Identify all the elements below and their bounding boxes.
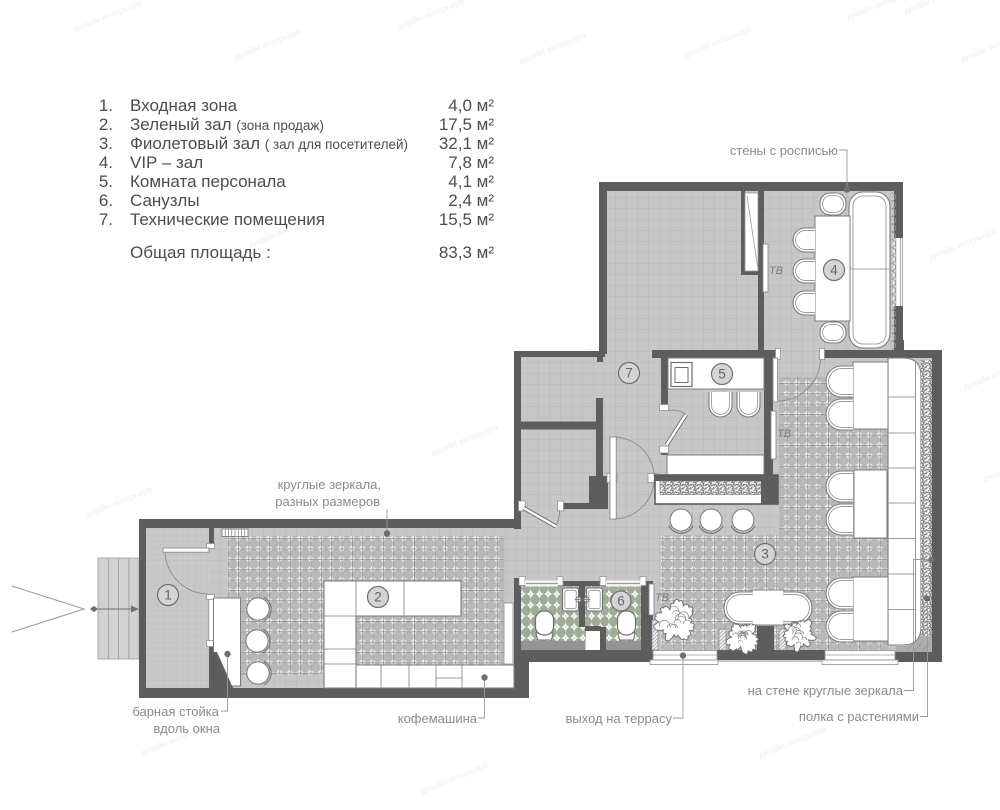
svg-text:1: 1 [164,588,172,603]
svg-text:барная стойка: барная стойка [132,704,219,719]
svg-text:7,8 м²: 7,8 м² [448,153,494,172]
svg-text:стены с росписью: стены с росписью [730,143,838,158]
svg-text:32,1 м²: 32,1 м² [439,134,494,153]
svg-text:2,4 м²: 2,4 м² [448,191,494,210]
svg-text:Комната персонала: Комната персонала [130,172,286,191]
svg-text:15,5 м²: 15,5 м² [439,210,494,229]
svg-text:2.: 2. [99,115,113,134]
svg-text:Технические помещения: Технические помещения [130,210,325,229]
svg-text:3.: 3. [99,134,113,153]
svg-text:вдоль окна: вдоль окна [153,721,220,736]
svg-text:83,3 м²: 83,3 м² [439,243,494,262]
svg-text:Зеленый зал (зона продаж): Зеленый зал (зона продаж) [130,115,324,134]
svg-text:5.: 5. [99,172,113,191]
svg-text:4,1 м²: 4,1 м² [448,172,494,191]
svg-text:6.: 6. [99,191,113,210]
svg-text:ТВ: ТВ [769,265,783,277]
svg-text:Общая площадь :: Общая площадь : [130,243,271,262]
svg-text:17,5 м²: 17,5 м² [439,115,494,134]
svg-text:на стене круглые зеркала: на стене круглые зеркала [748,683,904,698]
svg-text:ТВ: ТВ [777,428,791,440]
svg-text:VIP – зал: VIP – зал [130,153,203,172]
svg-text:7.: 7. [99,210,113,229]
svg-text:1.: 1. [99,96,113,115]
svg-text:5: 5 [718,367,726,382]
svg-text:Входная зона: Входная зона [130,96,238,115]
svg-text:4.: 4. [99,153,113,172]
svg-text:разных размеров: разных размеров [275,494,380,509]
svg-text:4,0 м²: 4,0 м² [448,96,494,115]
svg-text:2: 2 [374,590,382,605]
svg-text:4: 4 [830,263,838,278]
svg-text:ТВ: ТВ [655,592,669,604]
svg-text:круглые зеркала,: круглые зеркала, [278,477,381,492]
svg-text:кофемашина: кофемашина [398,711,478,726]
svg-text:полка с растениями: полка с растениями [799,709,919,724]
svg-text:Фиолетовый зал ( зал для посет: Фиолетовый зал ( зал для посетителей) [130,134,408,153]
svg-text:Санузлы: Санузлы [130,191,200,210]
svg-text:7: 7 [625,366,633,381]
svg-text:3: 3 [761,547,769,562]
svg-text:6: 6 [617,594,625,609]
svg-text:выход на террасу: выход на террасу [566,711,673,726]
